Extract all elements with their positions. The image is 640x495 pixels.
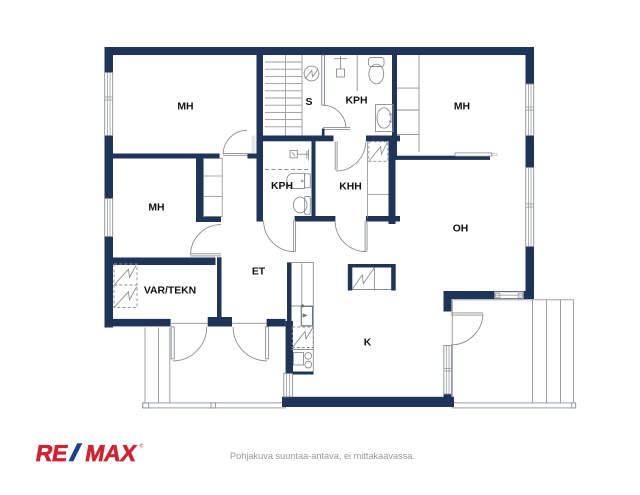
svg-text:K: K: [364, 338, 372, 349]
svg-text:Pohjakuva suuntaa-antava, ei m: Pohjakuva suuntaa-antava, ei mittakaavas…: [230, 451, 415, 461]
svg-text:ET: ET: [252, 267, 266, 278]
svg-text:MH: MH: [148, 203, 164, 214]
svg-text:RE: RE: [34, 440, 70, 466]
svg-text:MAX: MAX: [83, 440, 139, 466]
svg-text:KHH: KHH: [339, 182, 362, 193]
svg-text:VAR/TEKN: VAR/TEKN: [144, 286, 196, 297]
svg-text:OH: OH: [453, 224, 469, 235]
svg-text:KPH: KPH: [346, 95, 368, 106]
svg-text:KPH: KPH: [271, 181, 293, 192]
svg-text:MH: MH: [177, 102, 193, 113]
svg-text:®: ®: [140, 443, 144, 450]
svg-text:S: S: [306, 97, 313, 108]
svg-text:MH: MH: [454, 102, 470, 113]
